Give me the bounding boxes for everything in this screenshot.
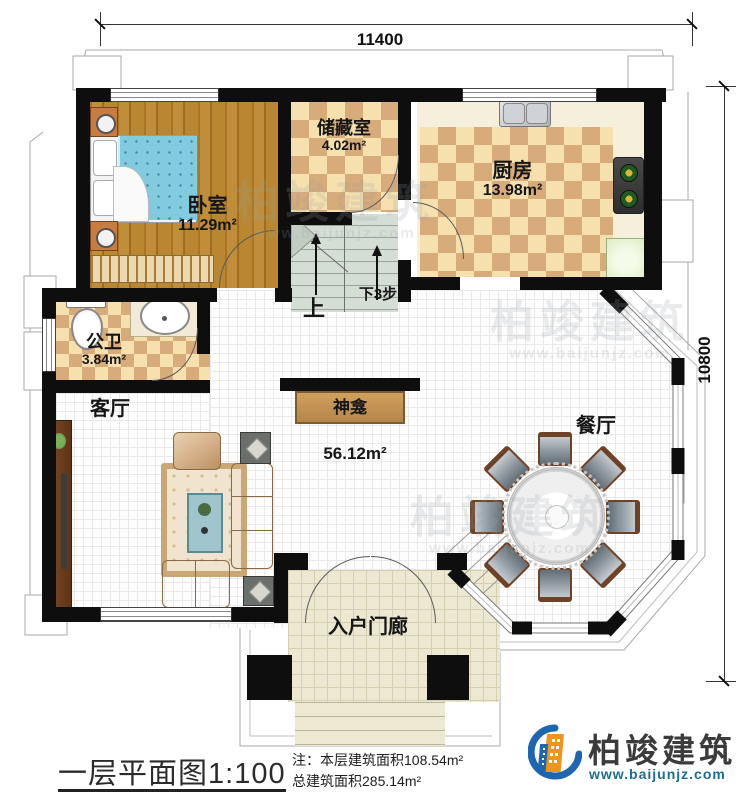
stairs-down-label: 下3步 (350, 287, 406, 304)
bedroom-label: 卧室 11.29m² (150, 195, 265, 235)
bedroom-name: 卧室 (150, 195, 265, 217)
shrine-label: 神龛 (333, 398, 367, 417)
plan-scale: 1:100 (208, 758, 286, 790)
storage-area: 4.02m² (289, 138, 399, 154)
hall-area-label: 56.12m² (300, 444, 410, 463)
shrine-table: 神龛 (295, 391, 405, 424)
right-dimension-ext-bottom (706, 681, 736, 682)
bathroom-name: 公卫 (58, 332, 150, 352)
bay-piers (452, 289, 678, 632)
storage-label: 储藏室 4.02m² (289, 118, 399, 154)
storage-name: 储藏室 (289, 118, 399, 138)
company-website: www.baijunjz.com (589, 766, 726, 782)
bathroom-window (42, 318, 56, 372)
note-line-2: 总建筑面积285.14m² (292, 771, 463, 792)
note-line-1: 注：本层建筑面积108.54m² (292, 750, 463, 771)
bathroom-area: 3.84m² (58, 352, 150, 368)
kitchen-name: 厨房 (455, 160, 570, 182)
company-name: 柏竣建筑 (588, 724, 736, 772)
top-dimension-line (100, 24, 692, 25)
porch-label: 入户门廊 (300, 616, 436, 638)
plan-title: 一层平面图1:100 (58, 750, 286, 792)
bathroom-label: 公卫 3.84m² (58, 332, 150, 368)
plan-title-text: 一层平面图 (58, 758, 208, 790)
living-window (100, 607, 232, 622)
kitchen-window (462, 88, 597, 102)
plan-notes: 注：本层建筑面积108.54m² 总建筑面积285.14m² (292, 750, 463, 792)
top-dimension-ext-right (692, 12, 693, 46)
right-dimension-ext-top (706, 86, 736, 87)
dining-label: 餐厅 (558, 415, 634, 437)
top-dimension-ext-left (100, 12, 101, 46)
kitchen-area: 13.98m² (455, 182, 570, 200)
right-dimension-label: 10800 (695, 315, 715, 405)
floor-plan-canvas: 11400 10800 (0, 0, 750, 801)
right-dimension-line (724, 86, 725, 682)
company-logo-icon (528, 722, 582, 786)
top-dimension-label: 11400 (330, 30, 430, 50)
kitchen-label: 厨房 13.98m² (455, 160, 570, 200)
title-underline (58, 789, 286, 792)
stairs-up-label: 上 (299, 297, 329, 322)
bedroom-area: 11.29m² (150, 217, 265, 235)
bedroom-window (110, 88, 219, 102)
living-label: 客厅 (75, 398, 145, 420)
